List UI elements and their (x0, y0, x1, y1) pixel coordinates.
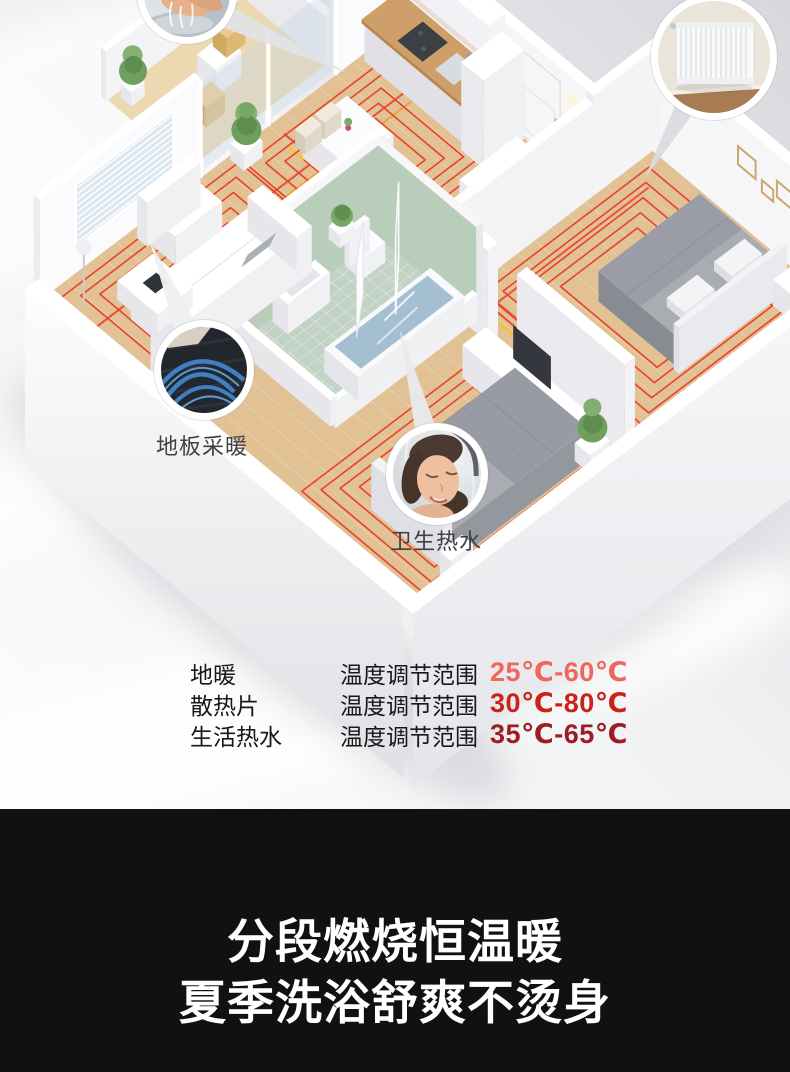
hot-water-label: 卫生热水 (390, 524, 482, 556)
floor-heating-label: 地板采暖 (156, 429, 248, 461)
spec-range: 30℃-80℃ (490, 688, 628, 719)
spec-row-domestic-hot-water: 生活热水 温度调节范围 35℃-65℃ (190, 719, 628, 750)
spec-row-radiator: 散热片 温度调节范围 30℃-80℃ (190, 688, 628, 719)
apartment-hero-section: 地板采暖 卫生热水 地暖 温度调节范围 25℃-60℃ 散热片 温度调节范围 3… (0, 0, 790, 809)
spec-name: 生活热水 (190, 718, 340, 752)
banner-title-line2: 夏季洗浴舒爽不烫身 (0, 972, 790, 1033)
floor-heating-callout (154, 320, 255, 421)
bottom-banner: 分段燃烧恒温暖 夏季洗浴舒爽不烫身 (0, 809, 790, 1072)
spec-desc: 温度调节范围 (340, 687, 490, 721)
spec-name: 地暖 (190, 656, 340, 690)
spec-name: 散热片 (190, 687, 340, 721)
product-detail-page: 地板采暖 卫生热水 地暖 温度调节范围 25℃-60℃ 散热片 温度调节范围 3… (0, 0, 790, 1072)
spec-range: 25℃-60℃ (490, 657, 628, 688)
temperature-spec-table: 地暖 温度调节范围 25℃-60℃ 散热片 温度调节范围 30℃-80℃ 生活热… (190, 657, 628, 750)
banner-title-line1: 分段燃烧恒温暖 (0, 911, 790, 972)
spec-desc: 温度调节范围 (340, 718, 490, 752)
spec-row-floor-heating: 地暖 温度调节范围 25℃-60℃ (190, 657, 628, 688)
spec-desc: 温度调节范围 (340, 656, 490, 690)
spec-range: 35℃-65℃ (490, 719, 628, 750)
